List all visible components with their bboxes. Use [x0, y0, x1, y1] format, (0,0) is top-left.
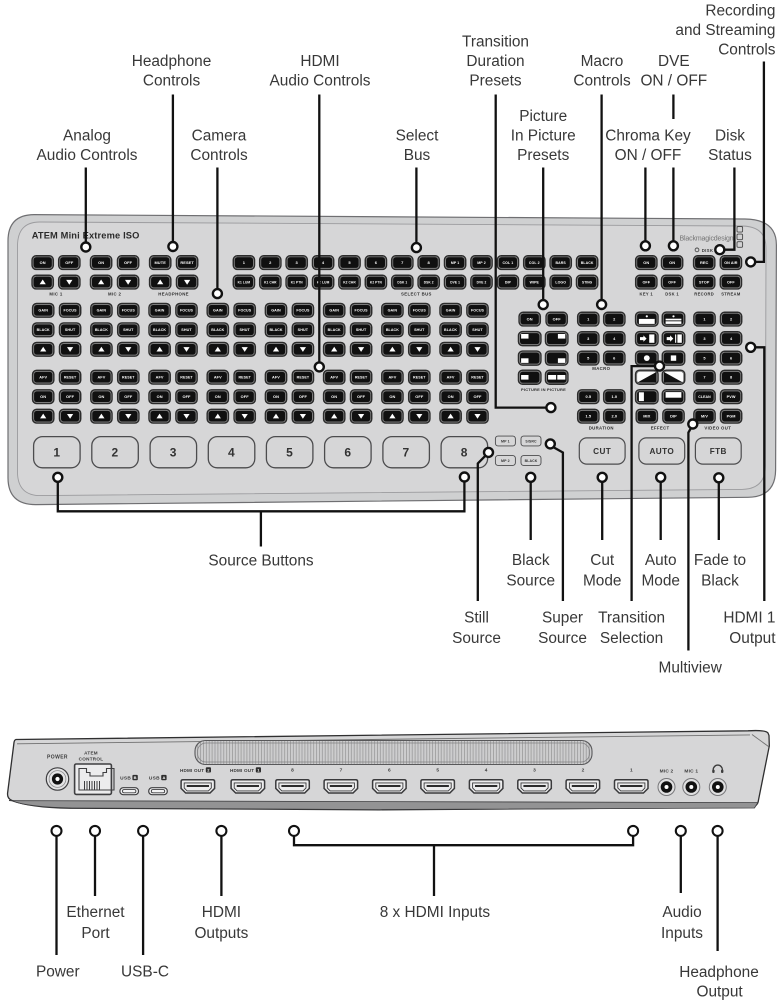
- svg-text:ON: ON: [98, 260, 104, 265]
- svg-text:BARS: BARS: [556, 261, 567, 265]
- svg-text:OFF: OFF: [299, 394, 308, 399]
- svg-text:RESET: RESET: [413, 376, 426, 380]
- svg-text:DURATION: DURATION: [589, 426, 614, 431]
- svg-text:Power: Power: [36, 964, 80, 981]
- svg-text:In Picture: In Picture: [511, 128, 576, 145]
- svg-text:SHUT: SHUT: [356, 328, 367, 332]
- svg-text:1: 1: [53, 446, 60, 460]
- svg-text:USB: USB: [120, 776, 131, 782]
- svg-text:MIC 2: MIC 2: [108, 291, 121, 296]
- svg-text:MUTE: MUTE: [154, 260, 166, 265]
- svg-text:RESET: RESET: [180, 376, 193, 380]
- svg-text:MIC 1: MIC 1: [684, 769, 698, 775]
- svg-text:OFF: OFF: [124, 260, 133, 265]
- svg-text:SHUT: SHUT: [65, 328, 76, 332]
- svg-text:4: 4: [228, 446, 235, 460]
- svg-text:Transition: Transition: [462, 34, 529, 51]
- svg-text:OFF: OFF: [553, 317, 562, 322]
- svg-text:2.0: 2.0: [611, 414, 617, 419]
- svg-text:SHUT: SHUT: [472, 328, 483, 332]
- svg-text:Controls: Controls: [143, 73, 201, 90]
- svg-text:ON / OFF: ON / OFF: [615, 147, 682, 164]
- svg-text:Output: Output: [696, 984, 743, 1000]
- svg-text:MIX: MIX: [643, 414, 651, 419]
- svg-text:7: 7: [340, 768, 343, 774]
- svg-text:MACRO: MACRO: [592, 366, 610, 371]
- svg-text:A: A: [162, 775, 165, 780]
- svg-text:RESET: RESET: [471, 376, 484, 380]
- svg-text:SHUT: SHUT: [123, 328, 134, 332]
- svg-text:7: 7: [703, 375, 705, 380]
- svg-text:REC: REC: [700, 260, 709, 265]
- svg-text:2: 2: [582, 768, 585, 774]
- svg-text:FOCUS: FOCUS: [64, 309, 78, 313]
- svg-text:5: 5: [286, 446, 293, 460]
- svg-text:Fade to: Fade to: [694, 552, 746, 569]
- svg-text:OFF: OFF: [124, 394, 133, 399]
- svg-text:K2 PTN: K2 PTN: [370, 280, 383, 284]
- svg-text:Presets: Presets: [469, 73, 521, 90]
- svg-text:Controls: Controls: [190, 147, 248, 164]
- svg-text:S/SRC: S/SRC: [525, 439, 537, 443]
- svg-text:B: B: [134, 775, 137, 780]
- svg-text:Select: Select: [396, 128, 439, 145]
- svg-text:MP 2: MP 2: [501, 459, 510, 463]
- svg-text:SHUT: SHUT: [414, 328, 425, 332]
- svg-text:DSK 2: DSK 2: [424, 280, 434, 284]
- svg-text:VIDEO OUT: VIDEO OUT: [704, 426, 731, 431]
- svg-text:Presets: Presets: [517, 147, 569, 164]
- svg-text:Disk: Disk: [715, 128, 745, 145]
- svg-text:BLACK: BLACK: [153, 328, 166, 332]
- svg-text:RESET: RESET: [64, 376, 77, 380]
- svg-text:ON: ON: [98, 394, 104, 399]
- svg-text:Inputs: Inputs: [661, 925, 703, 942]
- svg-text:Black: Black: [512, 552, 550, 569]
- svg-text:Macro: Macro: [581, 53, 624, 70]
- svg-text:4: 4: [485, 768, 488, 774]
- svg-text:8: 8: [461, 446, 468, 460]
- svg-text:AFV: AFV: [156, 376, 164, 380]
- svg-text:7: 7: [403, 446, 410, 460]
- svg-text:OFF: OFF: [66, 394, 75, 399]
- svg-text:BLACK: BLACK: [386, 328, 399, 332]
- svg-text:DIP: DIP: [670, 414, 677, 419]
- svg-text:Bus: Bus: [404, 147, 431, 164]
- svg-text:Cut: Cut: [590, 552, 615, 569]
- svg-text:AFV: AFV: [39, 376, 47, 380]
- svg-text:DISK: DISK: [702, 248, 714, 253]
- svg-text:Chroma Key: Chroma Key: [605, 128, 691, 145]
- svg-text:GAIN: GAIN: [97, 309, 107, 313]
- svg-text:OFF: OFF: [668, 280, 676, 284]
- svg-text:AFV: AFV: [97, 376, 105, 380]
- svg-text:BLACK: BLACK: [211, 328, 224, 332]
- svg-text:0.5: 0.5: [585, 394, 591, 399]
- svg-text:Source Buttons: Source Buttons: [208, 552, 314, 569]
- svg-text:STREAM: STREAM: [721, 291, 741, 296]
- svg-text:3: 3: [170, 446, 177, 460]
- svg-text:Mode: Mode: [641, 572, 680, 589]
- svg-text:FOCUS: FOCUS: [180, 309, 194, 313]
- svg-text:HDMI: HDMI: [300, 53, 339, 70]
- svg-text:Source: Source: [452, 630, 501, 647]
- svg-text:AFV: AFV: [388, 376, 396, 380]
- svg-text:COL 2: COL 2: [529, 261, 540, 265]
- svg-text:FOCUS: FOCUS: [122, 309, 136, 313]
- svg-text:Transition: Transition: [598, 609, 665, 626]
- svg-text:8: 8: [291, 768, 294, 774]
- svg-text:AUTO: AUTO: [649, 447, 674, 456]
- svg-text:FOCUS: FOCUS: [413, 309, 427, 313]
- svg-text:FOCUS: FOCUS: [238, 309, 252, 313]
- svg-text:ON: ON: [40, 394, 46, 399]
- svg-text:LOGO: LOGO: [555, 280, 566, 284]
- svg-text:FOCUS: FOCUS: [471, 309, 485, 313]
- svg-text:and Streaming: and Streaming: [675, 22, 775, 39]
- svg-text:RESET: RESET: [180, 260, 194, 265]
- svg-text:Super: Super: [542, 609, 583, 626]
- svg-text:HDMI OUT: HDMI OUT: [230, 768, 254, 773]
- svg-text:COL 1: COL 1: [503, 261, 514, 265]
- svg-text:Auto: Auto: [645, 552, 677, 569]
- svg-text:HDMI 1: HDMI 1: [723, 609, 775, 626]
- svg-text:Recording: Recording: [705, 3, 775, 20]
- svg-text:MIC 2: MIC 2: [660, 769, 674, 775]
- svg-text:HDMI: HDMI: [202, 904, 241, 921]
- svg-text:Mode: Mode: [583, 572, 622, 589]
- svg-text:2: 2: [112, 446, 119, 460]
- svg-text:SELECT BUS: SELECT BUS: [401, 291, 432, 296]
- svg-text:OFF: OFF: [357, 394, 366, 399]
- svg-text:M/V: M/V: [701, 415, 708, 419]
- svg-text:ON: ON: [389, 394, 395, 399]
- svg-text:AFV: AFV: [447, 376, 455, 380]
- svg-text:Multiview: Multiview: [659, 659, 723, 676]
- svg-text:Still: Still: [464, 609, 489, 626]
- svg-text:RESET: RESET: [355, 376, 368, 380]
- svg-text:6: 6: [344, 446, 351, 460]
- svg-text:SHUT: SHUT: [298, 328, 309, 332]
- svg-text:DSK 1: DSK 1: [665, 291, 679, 296]
- svg-text:ON: ON: [40, 260, 46, 265]
- svg-text:Audio: Audio: [662, 904, 701, 921]
- svg-text:BLACK: BLACK: [581, 261, 594, 265]
- svg-text:GAIN: GAIN: [38, 309, 48, 313]
- svg-text:ON: ON: [157, 394, 163, 399]
- svg-text:STING: STING: [582, 280, 593, 284]
- svg-text:OFF: OFF: [727, 280, 735, 284]
- svg-text:DVE: DVE: [658, 53, 690, 70]
- svg-text:CLEAN: CLEAN: [698, 395, 711, 399]
- svg-text:DVE 2: DVE 2: [477, 280, 487, 284]
- svg-text:HDMI OUT: HDMI OUT: [180, 768, 204, 773]
- svg-text:ON: ON: [643, 260, 649, 265]
- svg-text:OFF: OFF: [65, 260, 74, 265]
- svg-text:Headphone: Headphone: [132, 53, 212, 70]
- svg-text:BLACK: BLACK: [269, 328, 282, 332]
- svg-text:AFV: AFV: [214, 376, 222, 380]
- svg-text:PICTURE IN PICTURE: PICTURE IN PICTURE: [521, 387, 566, 392]
- svg-text:SHUT: SHUT: [181, 328, 192, 332]
- svg-text:Output: Output: [729, 630, 776, 647]
- svg-text:ON / OFF: ON / OFF: [640, 73, 707, 90]
- svg-text:ON: ON: [215, 394, 221, 399]
- svg-text:OFF: OFF: [182, 394, 191, 399]
- svg-text:PVW: PVW: [727, 395, 736, 399]
- svg-text:1: 1: [630, 768, 633, 774]
- svg-text:Source: Source: [506, 572, 555, 589]
- svg-text:FTB: FTB: [710, 447, 727, 456]
- svg-text:GAIN: GAIN: [213, 309, 223, 313]
- svg-text:AFV: AFV: [330, 376, 338, 380]
- svg-text:Audio Controls: Audio Controls: [37, 147, 138, 164]
- svg-text:PGM: PGM: [727, 415, 736, 419]
- svg-text:ATEM: ATEM: [84, 750, 98, 755]
- svg-text:Blackmagicdesign: Blackmagicdesign: [680, 235, 734, 242]
- svg-text:CONTROL: CONTROL: [79, 756, 104, 761]
- svg-text:HEADPHONE: HEADPHONE: [158, 291, 189, 296]
- svg-text:BLACK: BLACK: [95, 328, 108, 332]
- svg-text:MP 2: MP 2: [477, 261, 486, 265]
- svg-text:BLACK: BLACK: [444, 328, 457, 332]
- svg-text:EFFECT: EFFECT: [651, 426, 670, 431]
- svg-text:DVE 1: DVE 1: [450, 280, 460, 284]
- svg-text:ON: ON: [527, 317, 533, 322]
- svg-text:DSK 1: DSK 1: [397, 280, 407, 284]
- svg-text:K1 PTN: K1 PTN: [291, 280, 304, 284]
- svg-text:1.5: 1.5: [585, 414, 591, 419]
- svg-text:FOCUS: FOCUS: [355, 309, 369, 313]
- svg-text:Duration: Duration: [466, 53, 524, 70]
- svg-text:GAIN: GAIN: [329, 309, 339, 313]
- svg-text:GAIN: GAIN: [155, 309, 165, 313]
- svg-text:WIPE: WIPE: [530, 280, 540, 284]
- svg-text:Port: Port: [81, 925, 110, 942]
- svg-text:ON: ON: [331, 394, 337, 399]
- svg-text:3: 3: [533, 768, 536, 774]
- svg-text:Outputs: Outputs: [194, 925, 248, 942]
- svg-text:ON: ON: [273, 394, 279, 399]
- svg-text:ON: ON: [448, 394, 454, 399]
- svg-text:AFV: AFV: [272, 376, 280, 380]
- svg-text:K1 CHR: K1 CHR: [264, 280, 277, 284]
- svg-text:CUT: CUT: [593, 447, 611, 456]
- svg-text:Ethernet: Ethernet: [66, 904, 125, 921]
- svg-text:OFF: OFF: [415, 394, 424, 399]
- svg-text:RECORD: RECORD: [694, 291, 714, 296]
- svg-text:1.0: 1.0: [611, 394, 617, 399]
- svg-text:Selection: Selection: [600, 630, 663, 647]
- svg-text:USB: USB: [149, 776, 160, 782]
- svg-text:RESET: RESET: [238, 376, 251, 380]
- svg-text:5: 5: [436, 768, 439, 774]
- svg-text:GAIN: GAIN: [446, 309, 456, 313]
- svg-text:OFF: OFF: [241, 394, 250, 399]
- svg-text:6: 6: [388, 768, 391, 774]
- svg-text:MP 1: MP 1: [451, 261, 460, 265]
- svg-text:POWER: POWER: [47, 755, 68, 761]
- svg-text:BLACK: BLACK: [37, 328, 50, 332]
- svg-text:ON AIR: ON AIR: [724, 261, 738, 265]
- svg-text:STOP: STOP: [699, 280, 710, 284]
- svg-text:OFF: OFF: [642, 280, 650, 284]
- svg-text:Source: Source: [538, 630, 587, 647]
- svg-text:K2 CHR: K2 CHR: [343, 280, 356, 284]
- svg-text:Black: Black: [701, 572, 739, 589]
- svg-text:RESET: RESET: [297, 376, 310, 380]
- svg-text:BLACK: BLACK: [525, 459, 538, 463]
- svg-text:OFF: OFF: [473, 394, 482, 399]
- svg-text:Audio Controls: Audio Controls: [270, 73, 371, 90]
- svg-text:BLACK: BLACK: [328, 328, 341, 332]
- svg-text:SHUT: SHUT: [239, 328, 250, 332]
- svg-text:Picture: Picture: [519, 108, 567, 125]
- svg-text:DIP: DIP: [505, 280, 512, 284]
- svg-text:FOCUS: FOCUS: [296, 309, 310, 313]
- svg-text:K1 LUM: K1 LUM: [238, 280, 251, 284]
- svg-text:USB-C: USB-C: [121, 964, 169, 981]
- svg-text:8 x HDMI Inputs: 8 x HDMI Inputs: [380, 904, 491, 921]
- svg-text:MIC 1: MIC 1: [49, 291, 62, 296]
- svg-text:Headphone: Headphone: [679, 964, 759, 981]
- svg-text:KEY 1: KEY 1: [640, 291, 654, 296]
- svg-text:MP 1: MP 1: [501, 439, 510, 443]
- svg-text:GAIN: GAIN: [388, 309, 398, 313]
- svg-text:Status: Status: [708, 147, 752, 164]
- svg-text:Controls: Controls: [573, 73, 631, 90]
- svg-text:Camera: Camera: [192, 128, 247, 145]
- svg-text:Controls: Controls: [718, 42, 776, 59]
- svg-text:GAIN: GAIN: [271, 309, 281, 313]
- svg-text:Analog: Analog: [63, 128, 111, 145]
- svg-text:ON: ON: [669, 260, 675, 265]
- svg-text:RESET: RESET: [122, 376, 135, 380]
